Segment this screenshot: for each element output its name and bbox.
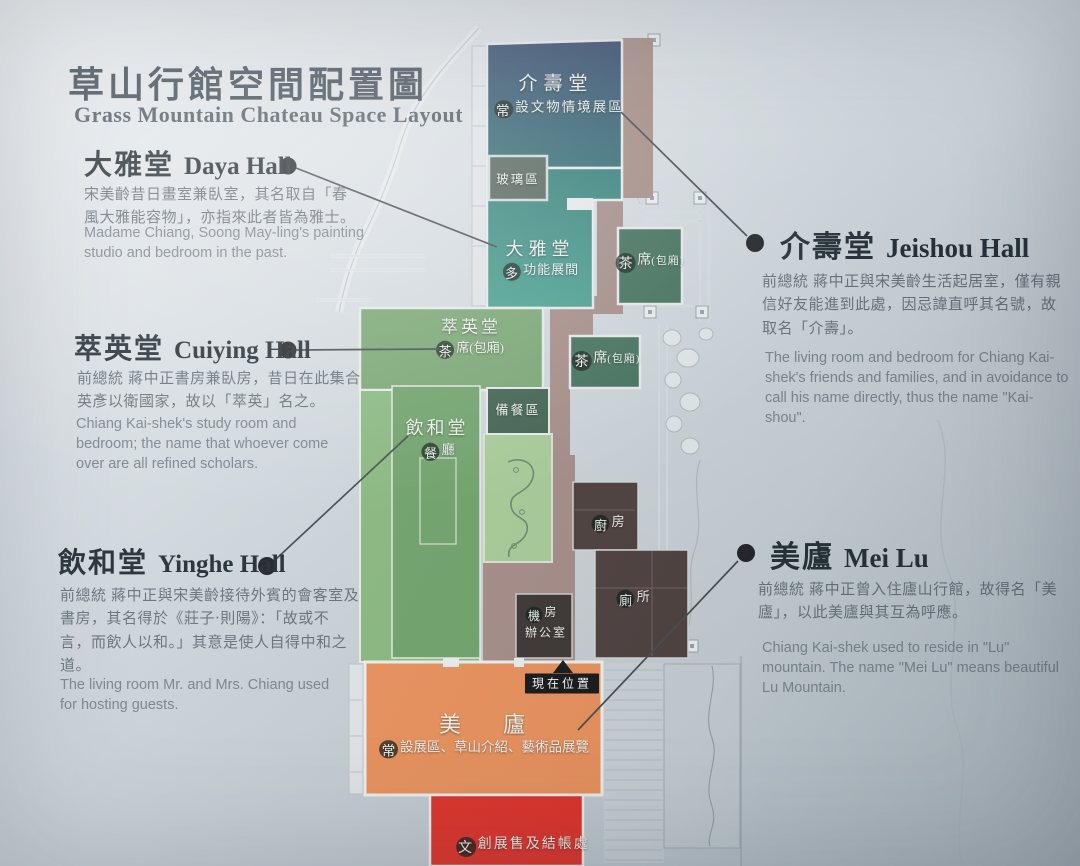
page-title: 草山行館空間配置圖: [68, 56, 428, 108]
section-cuiying-zh: 萃英堂: [74, 334, 164, 365]
section-yinghe-zh: 飲和堂: [58, 548, 148, 579]
section-meilu-body-zh: 前總統 蔣中正曾入住廬山行館，故得名「美廬」，以此美廬與其互為呼應。: [758, 578, 1074, 625]
section-yinghe: 飲和堂Yinghe Hall 前總統 蔣中正與宋美齡接待外賓的會客室及書房，其名…: [58, 541, 286, 581]
section-cuiying-name: Cuiying Hall: [174, 337, 311, 364]
section-yinghe-body-en: The living room Mr. and Mrs. Chiang used…: [60, 675, 338, 715]
signboard-photo: 介壽堂 常設文物情境展區 玻璃區 大雅堂 多功能展間 茶席(包廂) 茶席(包廂)…: [0, 0, 1080, 866]
legend-text: 草山行館空間配置圖 Grass Mountain Chateau Space L…: [0, 0, 1080, 866]
section-daya-name: Daya Hall: [184, 153, 292, 180]
section-jeishou-body-en: The living room and bedroom for Chiang K…: [765, 348, 1069, 428]
section-jeishou-zh: 介壽堂: [780, 231, 876, 264]
page-subtitle: Grass Mountain Chateau Space Layout: [74, 102, 463, 128]
section-daya-heading: 大雅堂Daya Hall: [84, 143, 292, 183]
section-jeishou-body-zh: 前總統 蔣中正與宋美齡生活起居室，僅有親信好友能進到此處，因忌諱直呼其名號，故取…: [762, 270, 1062, 340]
section-meilu-heading: 美廬Mei Lu: [770, 532, 929, 576]
section-cuiying-body-en: Chiang Kai-shek's study room and bedroom…: [76, 414, 346, 474]
section-meilu: 美廬Mei Lu 前總統 蔣中正曾入住廬山行館，故得名「美廬」，以此美廬與其互為…: [770, 532, 929, 576]
section-cuiying-body-zh: 前總統 蔣中正書房兼臥房，昔日在此集合英彥以衛國家，故以「萃英」名之。: [77, 367, 365, 414]
section-meilu-zh: 美廬: [770, 541, 834, 574]
section-meilu-body-en: Chiang Kai-shek used to reside in "Lu" m…: [762, 638, 1062, 698]
section-jeishou-heading: 介壽堂Jeishou Hall: [780, 222, 1029, 266]
section-yinghe-body-zh: 前總統 蔣中正與宋美齡接待外賓的會客室及書房，其名得於《莊子‧則陽》：「故或不言…: [60, 584, 360, 677]
section-yinghe-heading: 飲和堂Yinghe Hall: [58, 541, 286, 581]
section-daya-body-en: Madame Chiang, Soong May-ling's painting…: [84, 223, 372, 263]
section-cuiying: 萃英堂Cuiying Hall 前總統 蔣中正書房兼臥房，昔日在此集合英彥以衛國…: [74, 327, 311, 367]
section-daya-zh: 大雅堂: [84, 150, 174, 181]
section-yinghe-name: Yinghe Hall: [158, 551, 286, 578]
section-jeishou: 介壽堂Jeishou Hall 前總統 蔣中正與宋美齡生活起居室，僅有親信好友能…: [780, 222, 1029, 266]
section-meilu-name: Mei Lu: [844, 543, 929, 573]
section-daya: 大雅堂Daya Hall 宋美齡昔日畫室兼臥室，其名取自「春風大雅能容物」，亦指…: [84, 143, 292, 183]
section-cuiying-heading: 萃英堂Cuiying Hall: [74, 327, 311, 367]
section-jeishou-name: Jeishou Hall: [886, 233, 1029, 263]
